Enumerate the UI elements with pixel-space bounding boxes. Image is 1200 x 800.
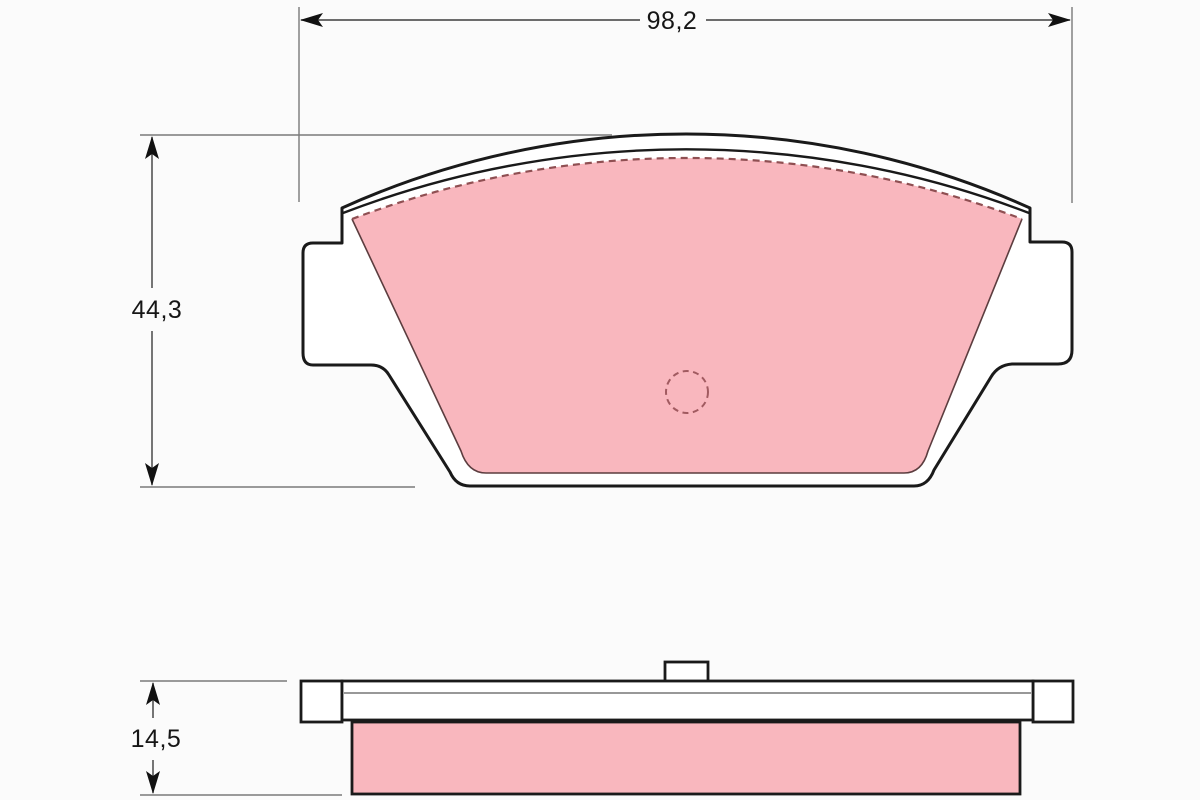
side-view-friction-block xyxy=(352,722,1020,794)
side-view-right-tab xyxy=(1033,681,1073,722)
side-view-nub xyxy=(665,662,708,682)
width-dimension-label: 98,2 xyxy=(647,7,698,35)
front-view xyxy=(303,134,1072,486)
height-dimension-label: 44,3 xyxy=(132,296,183,324)
side-view-backing-plate xyxy=(342,681,1033,720)
brake-pad-drawing: 98,2 44,3 14,5 xyxy=(0,0,1200,800)
technical-drawing-canvas: 98,2 44,3 14,5 xyxy=(0,0,1200,800)
friction-surface xyxy=(352,158,1022,473)
side-view-left-tab xyxy=(301,681,342,722)
thickness-dimension-label: 14,5 xyxy=(131,725,182,753)
side-view xyxy=(301,662,1073,794)
